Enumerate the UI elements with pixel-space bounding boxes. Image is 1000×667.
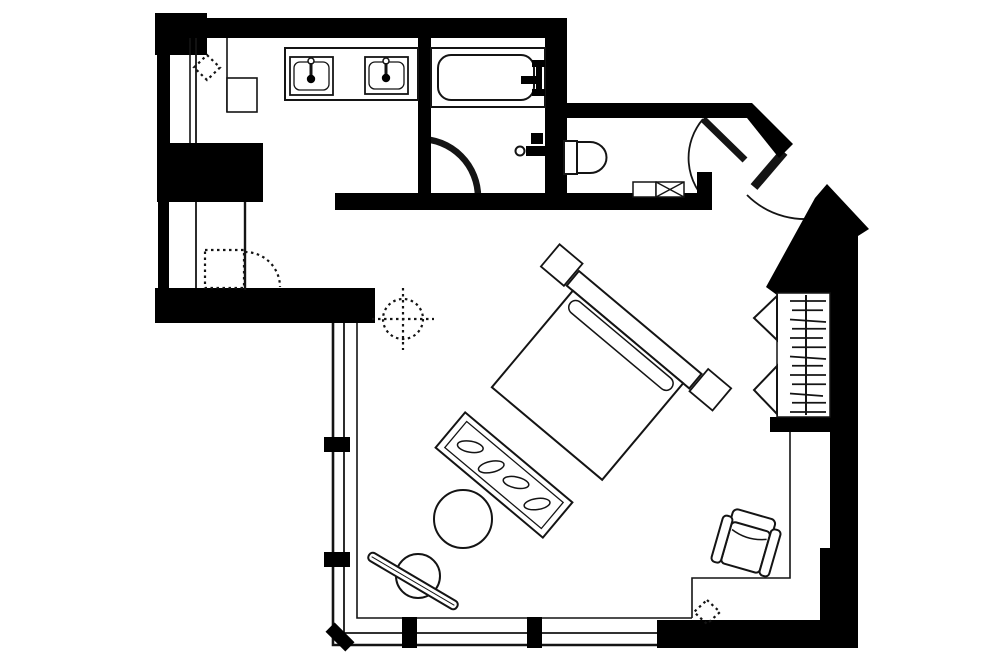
wall-bottom-right [657,620,858,648]
sink-left [290,57,333,95]
window-mullion-corner [326,623,355,652]
cabinet-box [227,78,257,112]
window-mullion [527,617,542,648]
wall-entry-diagonal-upper [747,103,793,158]
floor-plan-page [0,0,1000,667]
floor-plan [0,0,1000,667]
bathtub-room [431,48,547,156]
window-mullion [324,552,350,567]
bifold-door-marker [754,366,777,414]
ottoman-stool [434,490,492,548]
wall-left-block-low [155,288,375,323]
toilet-room [564,141,684,197]
wall-toilet-stub [697,172,712,210]
toilet-bowl [577,142,607,173]
wall-left-glazing-lower [158,202,169,288]
closet [754,293,830,417]
bathtub [438,55,534,100]
window-mullion [402,617,417,648]
sink-right [365,57,408,94]
wall-left-block-mid [157,143,263,202]
wall-tubroom-left [418,38,431,197]
ceiling-fixture-icon [372,288,434,350]
wall-top [155,18,567,38]
armchair [711,506,784,577]
toilet [564,141,607,174]
round-chair-with-rod [367,551,459,611]
wall-toilet-top [562,103,752,118]
sprinkler-diamond-icon [194,55,220,80]
bifold-door-marker [754,296,777,340]
dashed-door-arc [245,252,280,287]
wall-left-glazing-upper [157,38,170,143]
window-mullion [324,437,350,452]
dashed-door-panel [205,250,244,288]
wall-tub-toilet [545,30,567,210]
toilet-tank [564,141,577,174]
toilet-door-leaf [703,119,745,160]
shower-valve-icon [516,133,548,156]
access-panel [633,182,684,197]
closet-interior [777,293,830,417]
